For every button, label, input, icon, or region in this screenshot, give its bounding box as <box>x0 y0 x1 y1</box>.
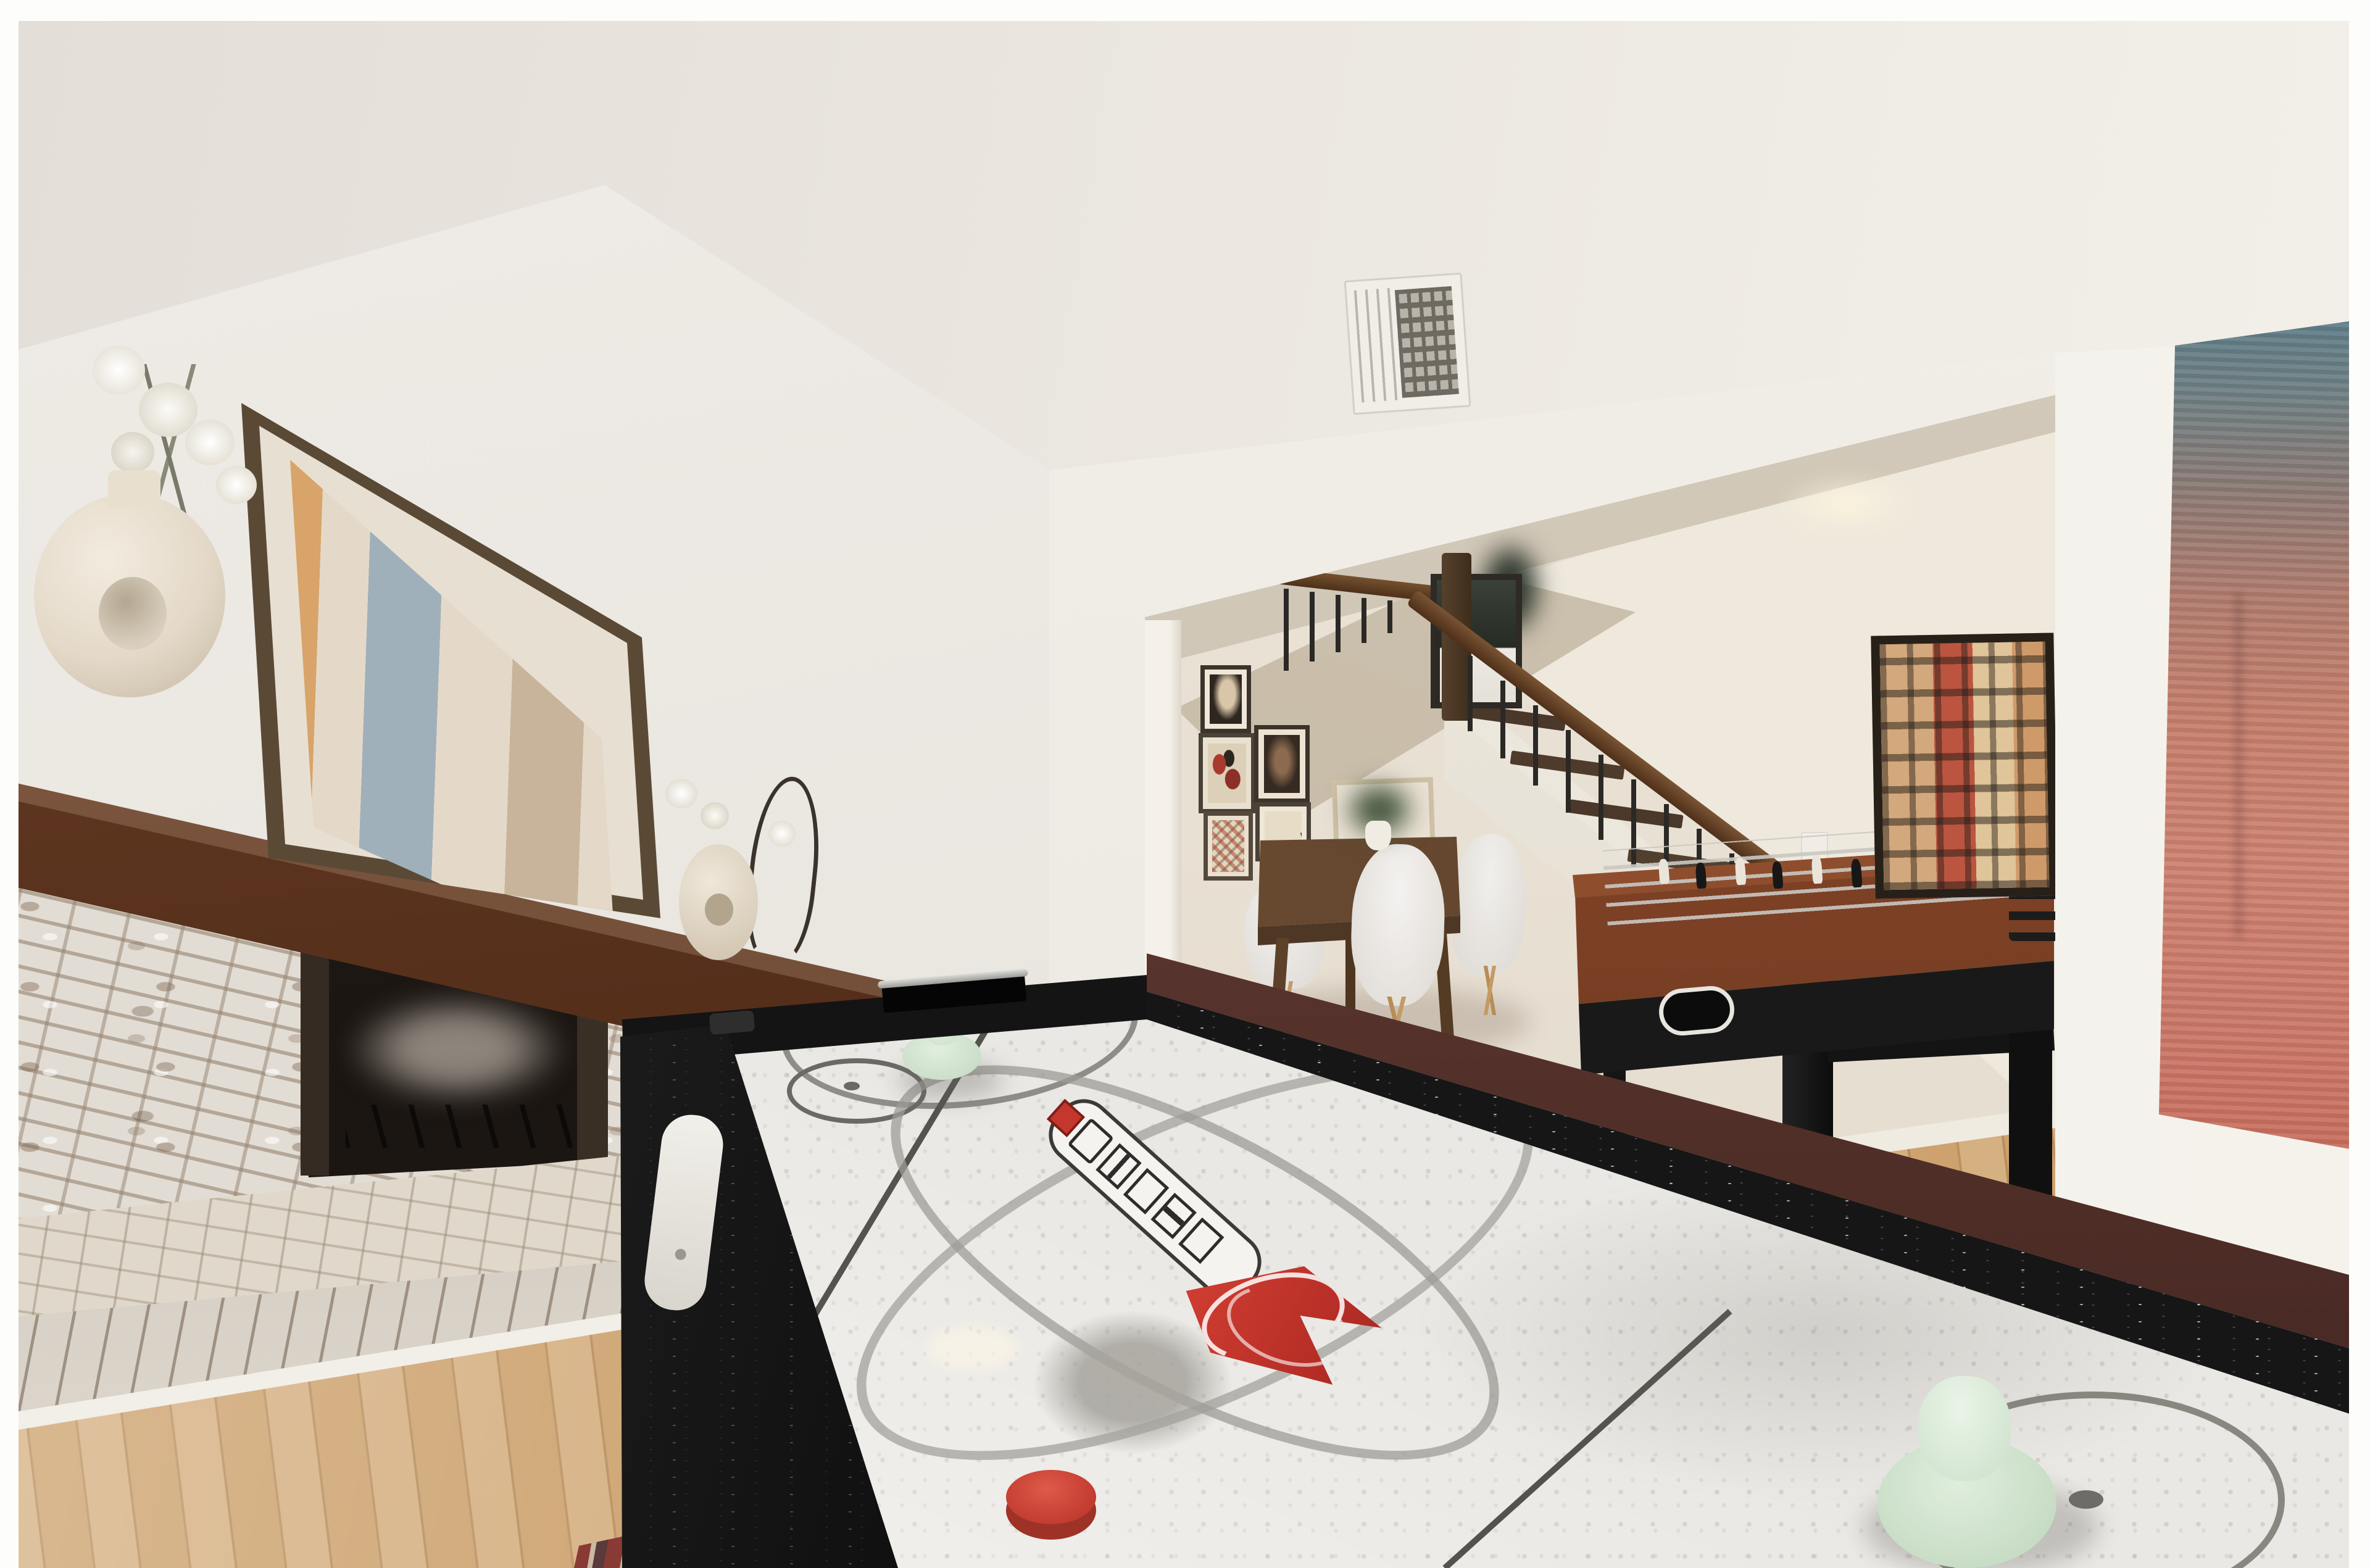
stair-baluster <box>1500 681 1505 758</box>
painting-streak <box>2234 592 2243 938</box>
gallery-frame-4 <box>1254 725 1310 803</box>
frame-3-art <box>1212 820 1244 872</box>
gallery-frame-3 <box>1204 811 1253 881</box>
puck-top <box>1006 1470 1096 1524</box>
donut-vase-neck <box>108 470 160 507</box>
photo-border-left <box>0 0 19 1568</box>
stair-baluster <box>1284 589 1289 671</box>
table-vase <box>1365 821 1391 850</box>
ceiling-vent <box>1344 273 1471 415</box>
small-flower <box>701 802 729 829</box>
flower-bloom <box>111 432 154 473</box>
frame-2-art <box>1208 744 1246 803</box>
stair-baluster <box>1435 631 1440 704</box>
mallet-b-knob <box>1918 1376 2011 1481</box>
flower-bloom <box>93 346 145 395</box>
photo-border-right <box>2349 0 2370 1568</box>
basement-game-room-photo <box>0 0 2370 1568</box>
frame-1-art <box>1210 674 1242 724</box>
firebox-post-left <box>301 947 329 1176</box>
vent-grille <box>1395 286 1459 398</box>
chair-right-legs <box>1463 966 1518 1015</box>
rail-corner-cap <box>709 1010 755 1035</box>
photo-border-top <box>0 0 2370 21</box>
stair-baluster <box>1336 595 1341 652</box>
ceiling-light-glow <box>1777 478 1913 528</box>
gallery-frame-2 <box>1199 733 1255 813</box>
building-art-facades <box>1880 642 2050 890</box>
stair-baluster <box>1533 705 1538 786</box>
stair-baluster <box>1362 598 1366 643</box>
flower-bloom <box>216 466 257 504</box>
stair-baluster <box>1387 600 1392 633</box>
vent-louvers <box>1354 288 1398 403</box>
stair-baluster <box>1599 755 1603 840</box>
gallery-frame-1 <box>1200 665 1251 733</box>
stair-baluster <box>1468 656 1473 731</box>
frame-4-art <box>1264 735 1300 793</box>
small-flower <box>768 821 796 847</box>
apron-handle-dot <box>675 1248 687 1261</box>
firebox-grate <box>346 1105 580 1148</box>
donut-vase-hole <box>99 577 167 650</box>
surface-light-reflection <box>926 1327 1018 1370</box>
stair-baluster <box>1566 730 1571 813</box>
flower-bloom <box>139 383 197 437</box>
firebox-logs <box>346 993 568 1105</box>
small-flower <box>665 779 697 808</box>
building-art-frame <box>1871 633 2058 898</box>
faceoff-dot-a <box>844 1082 860 1090</box>
small-donut-hole <box>705 894 733 926</box>
stair-baluster <box>1310 592 1315 662</box>
flower-bloom <box>185 420 235 465</box>
